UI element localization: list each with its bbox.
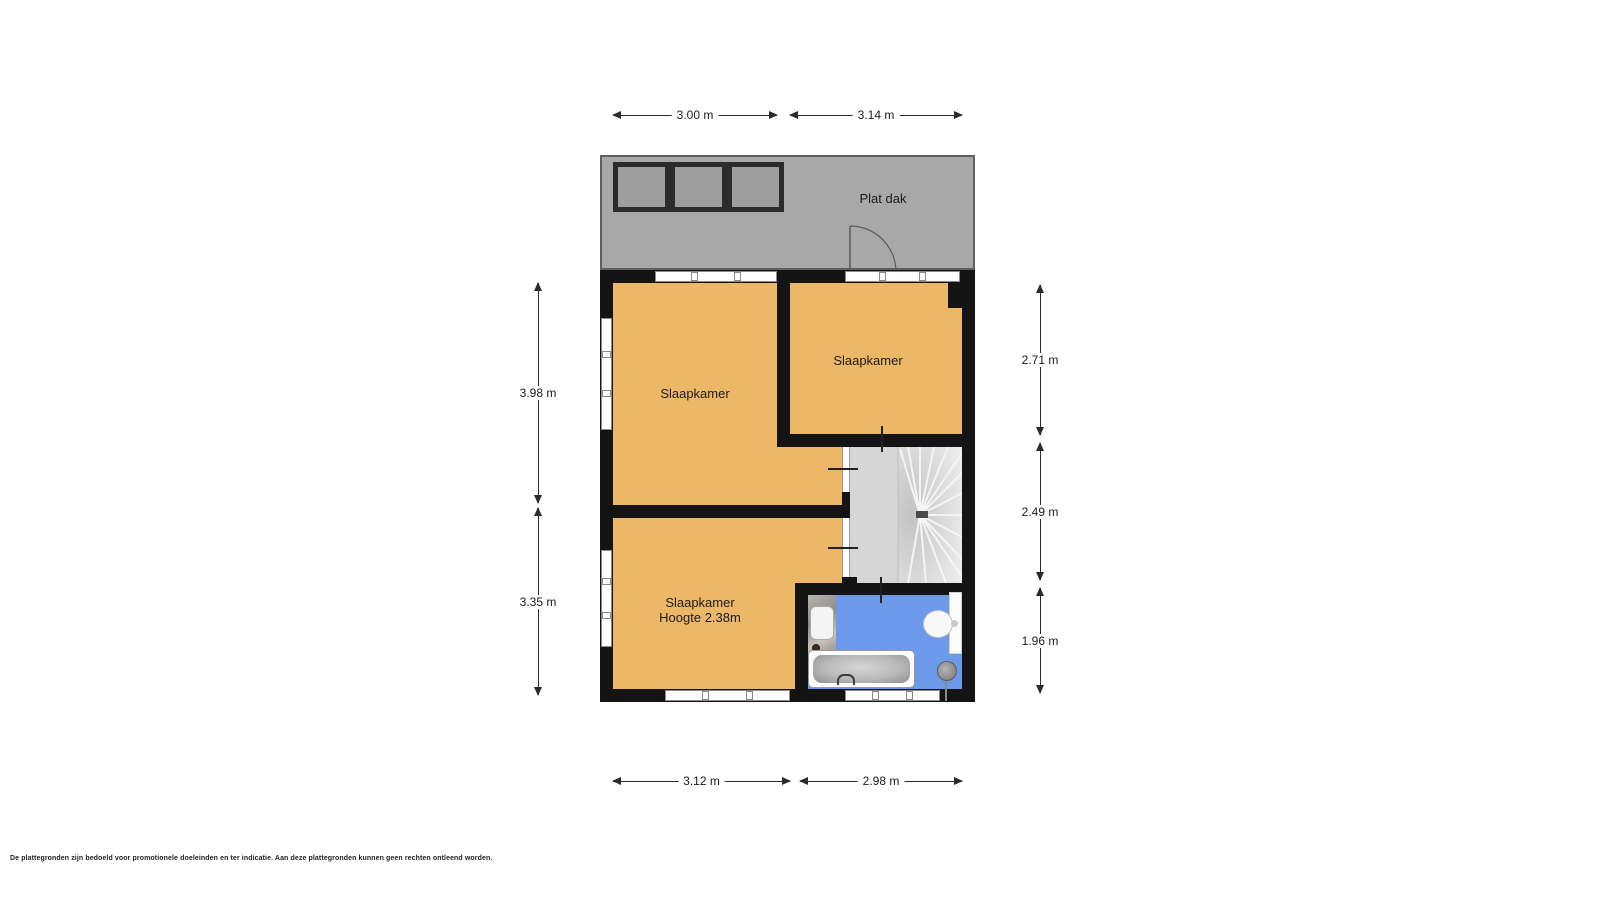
dim-bottom-2: 2.98 m (800, 775, 962, 787)
dim-top-1-label: 3.00 m (672, 108, 719, 122)
bedroom-bottom (613, 518, 842, 583)
staircase (850, 447, 962, 583)
dim-right-2-label: 2.49 m (1017, 505, 1064, 519)
window-top-left (655, 271, 777, 282)
dim-left-2: 3.35 m (532, 508, 544, 695)
floorplan-page: Plat dak (0, 0, 1600, 900)
wall-bathroom-top-left (795, 583, 857, 595)
shower-head-icon (937, 661, 957, 681)
door-swing-tick (828, 468, 858, 470)
skylight-icon (613, 162, 670, 212)
window-bottom-right (845, 690, 940, 701)
window-bottom-left (665, 690, 790, 701)
doorway-tick-bathroom (880, 577, 882, 603)
wall-bathroom-left (795, 595, 808, 689)
bathtub-drain-icon (837, 674, 855, 685)
wall-landing-west-block (842, 492, 850, 518)
bedroom-top-left-entry (777, 447, 842, 505)
bedroom-top-left-label: Slaapkamer (625, 387, 765, 402)
dim-bottom-1-label: 3.12 m (678, 774, 725, 788)
skylight-icon (670, 162, 727, 212)
wall-bedrooms-divider (777, 283, 790, 434)
wall-landing-top-left (777, 434, 857, 447)
dim-right-1-label: 2.71 m (1017, 353, 1064, 367)
flush-button-icon (951, 620, 958, 627)
dim-bottom-1: 3.12 m (613, 775, 790, 787)
dim-right-3-label: 1.96 m (1017, 634, 1064, 648)
wall-bedrooms-horizontal (613, 505, 850, 518)
bedroom-bottom-height: Hoogte 2.38m (630, 611, 770, 626)
dim-left-1: 3.98 m (532, 283, 544, 503)
disclaimer-text: De plattegronden zijn bedoeld voor promo… (10, 855, 492, 862)
wall-landing-top-right (908, 434, 962, 447)
dim-right-1: 2.71 m (1034, 285, 1046, 435)
bedroom-top-right-label: Slaapkamer (803, 354, 933, 369)
dim-right-3: 1.96 m (1034, 588, 1046, 693)
dim-top-2-label: 3.14 m (853, 108, 900, 122)
dim-bottom-2-label: 2.98 m (858, 774, 905, 788)
shower-hose-icon (945, 678, 947, 701)
doorway-tick-bedroom-right (881, 426, 883, 452)
dim-right-2: 2.49 m (1034, 443, 1046, 580)
door-swing-tick (828, 547, 858, 549)
window-left-upper (601, 318, 612, 430)
dim-top-1: 3.00 m (613, 109, 777, 121)
bedroom-bottom-label: Slaapkamer Hoogte 2.38m (630, 596, 770, 626)
roof-door-icon (843, 218, 913, 274)
bathtub (808, 650, 915, 688)
dim-left-2-label: 3.35 m (515, 595, 562, 609)
bedroom-bottom-name: Slaapkamer (630, 596, 770, 611)
window-door-to-roof (845, 271, 960, 282)
sink (810, 606, 834, 640)
toilet (923, 610, 953, 638)
skylights (613, 162, 784, 212)
dim-top-2: 3.14 m (790, 109, 962, 121)
roof-label: Plat dak (833, 191, 933, 206)
dim-left-1-label: 3.98 m (515, 386, 562, 400)
window-left-lower (601, 550, 612, 647)
skylight-icon (727, 162, 784, 212)
wall-notch (948, 283, 962, 308)
